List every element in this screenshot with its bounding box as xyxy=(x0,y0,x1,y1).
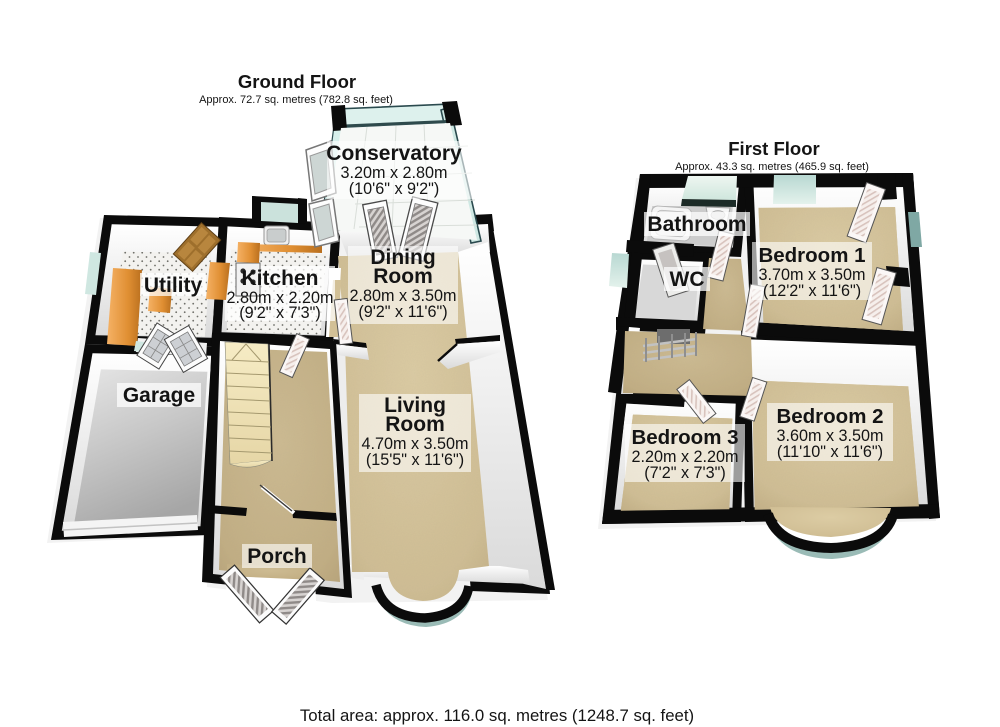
svg-text:Utility: Utility xyxy=(144,274,203,297)
svg-text:(15'5" x 11'6"): (15'5" x 11'6") xyxy=(366,451,464,469)
svg-text:Bedroom 1: Bedroom 1 xyxy=(758,244,865,267)
svg-text:Bedroom 2: Bedroom 2 xyxy=(776,405,883,428)
svg-text:Room: Room xyxy=(385,413,445,436)
svg-text:First Floor: First Floor xyxy=(728,138,819,159)
svg-text:Room: Room xyxy=(373,265,433,288)
svg-text:(10'6" x 9'2"): (10'6" x 9'2") xyxy=(349,180,440,198)
svg-text:Conservatory: Conservatory xyxy=(326,142,462,165)
svg-text:Total area: approx. 116.0 sq.: Total area: approx. 116.0 sq. metres (12… xyxy=(300,706,694,725)
svg-text:(12'2" x 11'6"): (12'2" x 11'6") xyxy=(763,282,861,300)
svg-text:Approx. 43.3 sq. metres (465.9: Approx. 43.3 sq. metres (465.9 sq. feet) xyxy=(675,161,869,173)
svg-text:Garage: Garage xyxy=(123,384,195,407)
svg-text:(11'10" x 11'6"): (11'10" x 11'6") xyxy=(777,443,883,461)
svg-text:Bedroom 3: Bedroom 3 xyxy=(631,426,738,449)
svg-text:(9'2" x 11'6"): (9'2" x 11'6") xyxy=(358,303,447,321)
svg-text:WC: WC xyxy=(670,268,705,291)
svg-text:Bathroom: Bathroom xyxy=(647,213,746,236)
svg-text:Porch: Porch xyxy=(247,545,307,568)
svg-text:Ground Floor: Ground Floor xyxy=(238,71,356,92)
svg-text:Kitchen: Kitchen xyxy=(241,267,318,290)
svg-text:(9'2" x 7'3"): (9'2" x 7'3") xyxy=(239,304,321,322)
svg-text:(7'2" x 7'3"): (7'2" x 7'3") xyxy=(644,464,726,482)
svg-text:Approx. 72.7 sq. metres (782.8: Approx. 72.7 sq. metres (782.8 sq. feet) xyxy=(199,94,393,106)
